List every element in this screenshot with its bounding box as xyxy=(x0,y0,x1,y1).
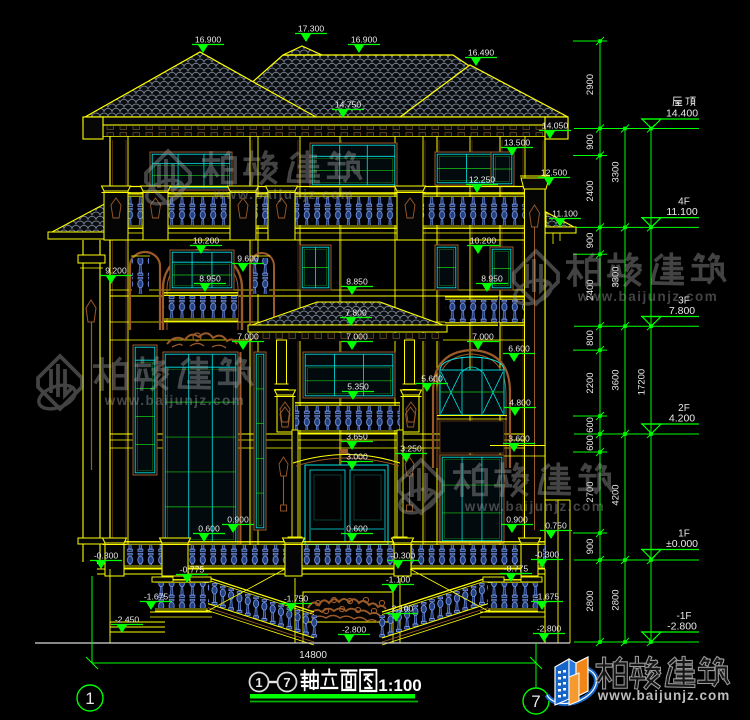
svg-text:0.900: 0.900 xyxy=(227,515,249,525)
svg-text:±0.000: ±0.000 xyxy=(666,538,698,550)
svg-text:3300: 3300 xyxy=(611,161,622,182)
svg-text:9.200: 9.200 xyxy=(105,266,127,276)
svg-text:7.800: 7.800 xyxy=(669,305,695,317)
svg-text:1: 1 xyxy=(255,675,262,690)
svg-text:-2.800: -2.800 xyxy=(342,625,367,635)
svg-text:11.100: 11.100 xyxy=(666,206,697,218)
svg-text:10.200: 10.200 xyxy=(470,236,497,246)
svg-text:www.baijunjz.com: www.baijunjz.com xyxy=(464,499,606,514)
svg-text:9.600: 9.600 xyxy=(237,254,259,264)
svg-text:600: 600 xyxy=(585,435,596,451)
svg-text:800: 800 xyxy=(585,330,596,346)
svg-text:14.400: 14.400 xyxy=(666,108,698,120)
svg-text:16.900: 16.900 xyxy=(351,35,378,45)
svg-text:11.100: 11.100 xyxy=(552,209,578,219)
svg-text:5.600: 5.600 xyxy=(421,374,443,384)
svg-text:3600: 3600 xyxy=(611,369,622,390)
svg-text:3.000: 3.000 xyxy=(346,452,368,462)
svg-text:14.750: 14.750 xyxy=(335,100,362,110)
svg-text:www.baijunjz.com: www.baijunjz.com xyxy=(597,688,731,703)
svg-text:1: 1 xyxy=(85,689,94,708)
svg-text:17.300: 17.300 xyxy=(298,24,325,34)
svg-text:7.000: 7.000 xyxy=(237,332,259,342)
svg-text:0.900: 0.900 xyxy=(506,515,528,525)
svg-text:2900: 2900 xyxy=(585,74,596,95)
svg-text:4.800: 4.800 xyxy=(509,398,531,408)
svg-text:14800: 14800 xyxy=(299,650,327,661)
svg-text:900: 900 xyxy=(585,539,596,555)
svg-text:-1.675: -1.675 xyxy=(535,592,560,602)
svg-text:3.250: 3.250 xyxy=(400,444,422,454)
svg-text:7.000: 7.000 xyxy=(472,332,494,342)
svg-text:900: 900 xyxy=(585,233,596,249)
svg-text:4200: 4200 xyxy=(611,484,622,505)
svg-text:0.600: 0.600 xyxy=(346,524,368,534)
svg-text:-1.675: -1.675 xyxy=(144,592,169,602)
svg-text:13.500: 13.500 xyxy=(504,138,531,148)
svg-text:-1.750: -1.750 xyxy=(284,594,309,604)
svg-text:16.900: 16.900 xyxy=(195,35,222,45)
svg-text:3.650: 3.650 xyxy=(346,432,368,442)
svg-text:0.750: 0.750 xyxy=(545,521,567,531)
svg-text:-0.300: -0.300 xyxy=(535,550,560,560)
svg-text:8.950: 8.950 xyxy=(199,274,221,284)
svg-text:3.600: 3.600 xyxy=(508,434,530,444)
svg-text:7: 7 xyxy=(531,692,540,711)
svg-text:8.850: 8.850 xyxy=(346,277,368,287)
svg-text:-2.800: -2.800 xyxy=(667,621,697,633)
svg-text:-0.300: -0.300 xyxy=(94,551,119,561)
svg-text:1:100: 1:100 xyxy=(378,676,421,695)
svg-text:2200: 2200 xyxy=(585,372,596,393)
svg-text:4.200: 4.200 xyxy=(669,413,695,425)
svg-text:-0.775: -0.775 xyxy=(180,565,205,575)
svg-text:www.baijunjz.com: www.baijunjz.com xyxy=(577,289,719,304)
svg-text:2800: 2800 xyxy=(585,590,596,611)
svg-text:-2.100: -2.100 xyxy=(389,604,414,614)
svg-text:8.950: 8.950 xyxy=(481,274,503,284)
svg-text:7.800: 7.800 xyxy=(345,308,367,318)
svg-text:-1.100: -1.100 xyxy=(386,575,411,585)
svg-text:2800: 2800 xyxy=(611,589,622,610)
svg-text:900: 900 xyxy=(585,134,596,150)
svg-text:7: 7 xyxy=(283,675,290,690)
svg-text:7.000: 7.000 xyxy=(346,332,368,342)
svg-text:12.500: 12.500 xyxy=(541,168,568,178)
svg-text:2400: 2400 xyxy=(585,180,596,201)
svg-text:14.050: 14.050 xyxy=(542,121,569,131)
svg-text:600: 600 xyxy=(585,417,596,433)
svg-text:-0.775: -0.775 xyxy=(504,564,529,574)
svg-text:6.600: 6.600 xyxy=(508,344,530,354)
svg-text:10.200: 10.200 xyxy=(193,236,220,246)
svg-text:17200: 17200 xyxy=(637,369,648,395)
svg-text:www.baijunjz.com: www.baijunjz.com xyxy=(104,393,246,408)
svg-text:12.250: 12.250 xyxy=(469,175,496,185)
svg-text:5.350: 5.350 xyxy=(347,382,369,392)
svg-text:-2.450: -2.450 xyxy=(115,615,140,625)
svg-text:-2.800: -2.800 xyxy=(537,624,562,634)
svg-text:0.600: 0.600 xyxy=(198,524,220,534)
svg-text:-0.300: -0.300 xyxy=(391,551,416,561)
svg-text:www.baijunjz.com: www.baijunjz.com xyxy=(213,187,355,202)
svg-text:16.490: 16.490 xyxy=(468,48,495,58)
